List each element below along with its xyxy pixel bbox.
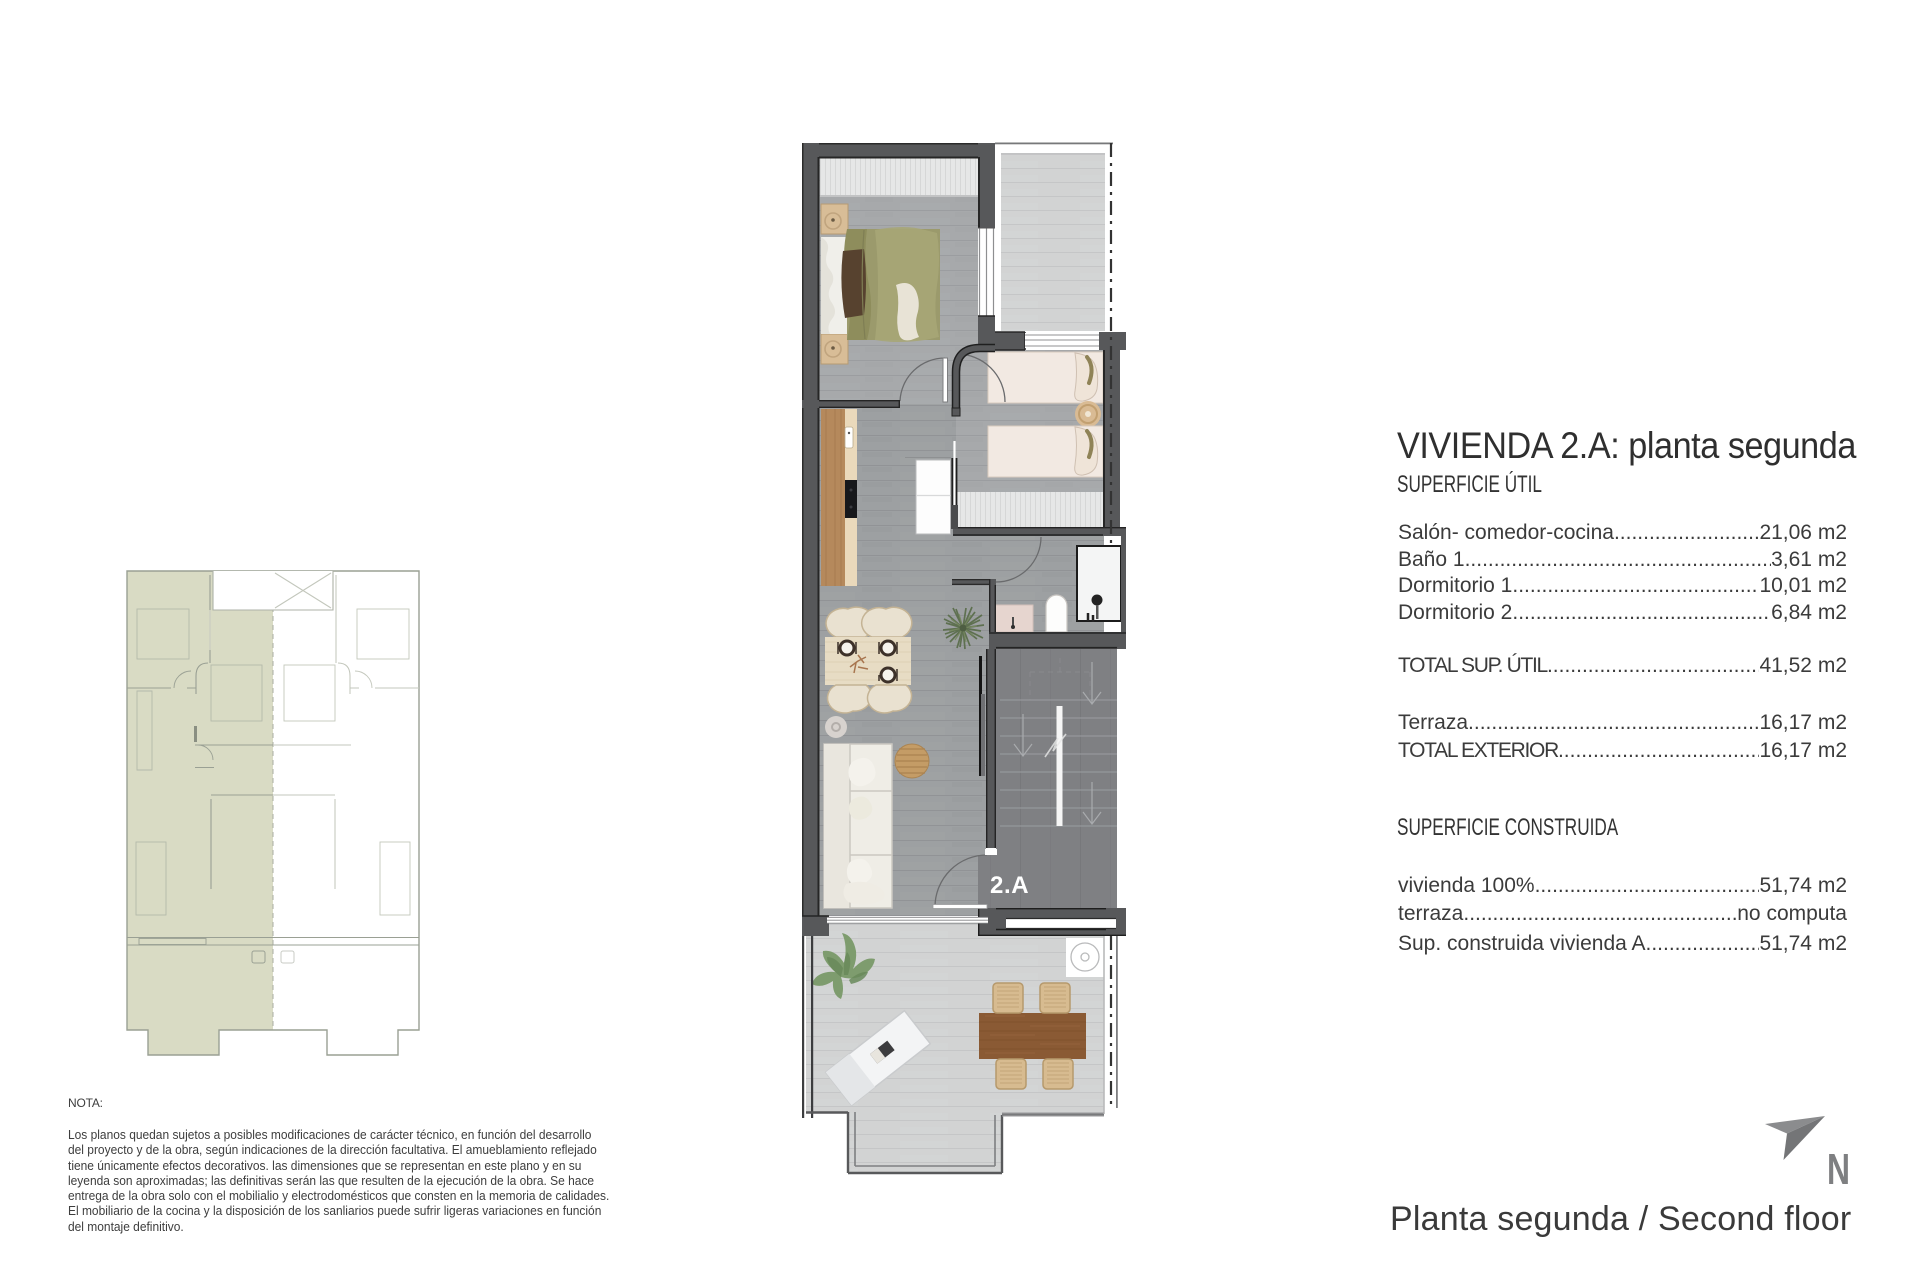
- svg-text:2.A: 2.A: [990, 872, 1029, 899]
- svg-text:N: N: [1827, 1145, 1850, 1194]
